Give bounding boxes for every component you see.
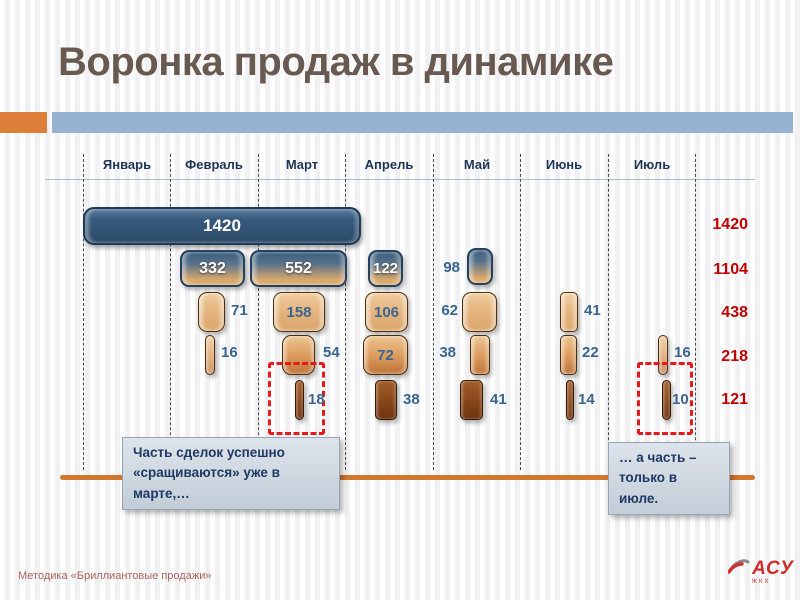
funnel-bar-stage1-1420: 1420 [83, 207, 361, 245]
funnel-bar-may-38 [470, 335, 490, 375]
header-accent-blue [52, 112, 793, 133]
stage-total-1: 1420 [686, 216, 748, 234]
column-divider-line [258, 154, 259, 470]
bar-value-label: 158 [286, 304, 311, 321]
funnel-bar-feb-332: 332 [180, 250, 245, 287]
funnel-bar-feb-16 [205, 335, 215, 375]
bar-value-label: 38 [403, 391, 420, 408]
funnel-bar-jun-41 [560, 292, 578, 332]
funnel-bar-jun-14 [566, 380, 574, 420]
page-title: Воронка продаж в динамике [58, 40, 758, 85]
funnel-bar-may-98 [467, 248, 493, 285]
month-label-february: Февраль [170, 157, 258, 172]
column-divider-line [170, 154, 171, 470]
header-accent-orange [0, 112, 47, 133]
bar-value-label: 22 [582, 344, 599, 361]
bar-value-label: 10 [672, 391, 689, 408]
funnel-bar-feb-71 [198, 292, 225, 332]
bar-value-label: 18 [308, 391, 325, 408]
bar-value-label: 332 [199, 260, 226, 278]
month-label-june: Июнь [520, 157, 608, 172]
month-label-march: Март [258, 157, 346, 172]
funnel-bar-mar-552: 552 [250, 250, 347, 287]
column-divider-line [345, 154, 346, 470]
footer-note: Методика «Бриллиантовые продажи» [18, 570, 211, 582]
funnel-bar-apr-106: 106 [365, 292, 408, 332]
column-divider-line [83, 154, 84, 470]
bar-value-label: 62 [420, 302, 458, 319]
column-divider-line [608, 154, 609, 470]
funnel-bar-jun-22 [560, 335, 577, 375]
asu-logo-swoosh-icon [728, 556, 750, 581]
bar-value-label: 71 [231, 302, 248, 319]
funnel-bar-apr-38 [375, 380, 397, 420]
funnel-bar-may-41 [460, 380, 483, 420]
months-underline [45, 179, 755, 180]
bar-value-label: 41 [584, 302, 601, 319]
funnel-bar-may-62 [462, 292, 497, 332]
month-label-may: Май [433, 157, 521, 172]
month-label-january: Январь [83, 157, 171, 172]
stage-total-3: 438 [686, 304, 748, 322]
callout-march: Часть сделок успешно «сращиваются» уже в… [122, 437, 340, 510]
bar-value-label: 72 [377, 347, 394, 364]
bar-value-label: 54 [323, 344, 340, 361]
bar-value-label: 16 [221, 344, 238, 361]
bar-value-label: 38 [418, 344, 456, 361]
bar-value-label: 41 [490, 391, 507, 408]
column-divider-line [520, 154, 521, 470]
asu-logo: АСУ ЖКХ [728, 556, 794, 598]
bar-value-label: 122 [373, 260, 398, 277]
funnel-bar-mar-158: 158 [273, 292, 325, 332]
bar-value-label: 16 [674, 344, 691, 361]
bar-value-label: 106 [374, 304, 399, 321]
stage-total-2: 1104 [686, 261, 748, 279]
asu-logo-text: АСУ [752, 558, 794, 580]
stage-total-5: 121 [686, 391, 748, 409]
bar-value-label: 552 [285, 260, 312, 278]
month-label-july: Июль [608, 157, 696, 172]
funnel-bar-apr-122: 122 [368, 250, 403, 287]
stage-total-4: 218 [686, 348, 748, 366]
slide: Воронка продаж в динамике Январь Февраль… [0, 0, 800, 600]
funnel-bar-apr-72: 72 [363, 335, 408, 375]
bar-value-label: 98 [422, 259, 460, 276]
bar-value-label: 14 [578, 391, 595, 408]
month-label-april: Апрель [345, 157, 433, 172]
bar-value-label: 1420 [203, 216, 241, 236]
callout-july: … а часть – только в июле. [608, 442, 730, 515]
